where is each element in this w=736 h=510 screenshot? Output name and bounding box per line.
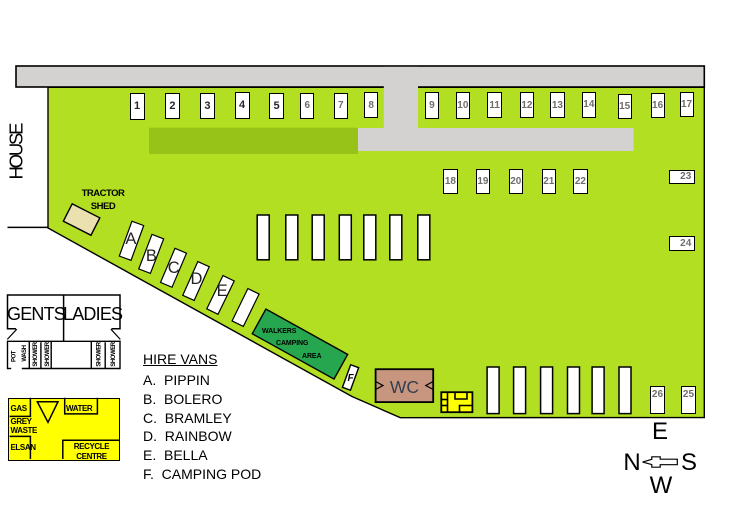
svg-text:WASH: WASH [22,345,28,361]
svg-text:POT: POT [12,350,18,362]
svg-text:SHOWER: SHOWER [33,341,39,366]
svg-text:SHOWER: SHOWER [111,341,117,366]
svg-text:SHOWER: SHOWER [97,341,103,366]
svg-text:SHOWER: SHOWER [45,341,51,366]
